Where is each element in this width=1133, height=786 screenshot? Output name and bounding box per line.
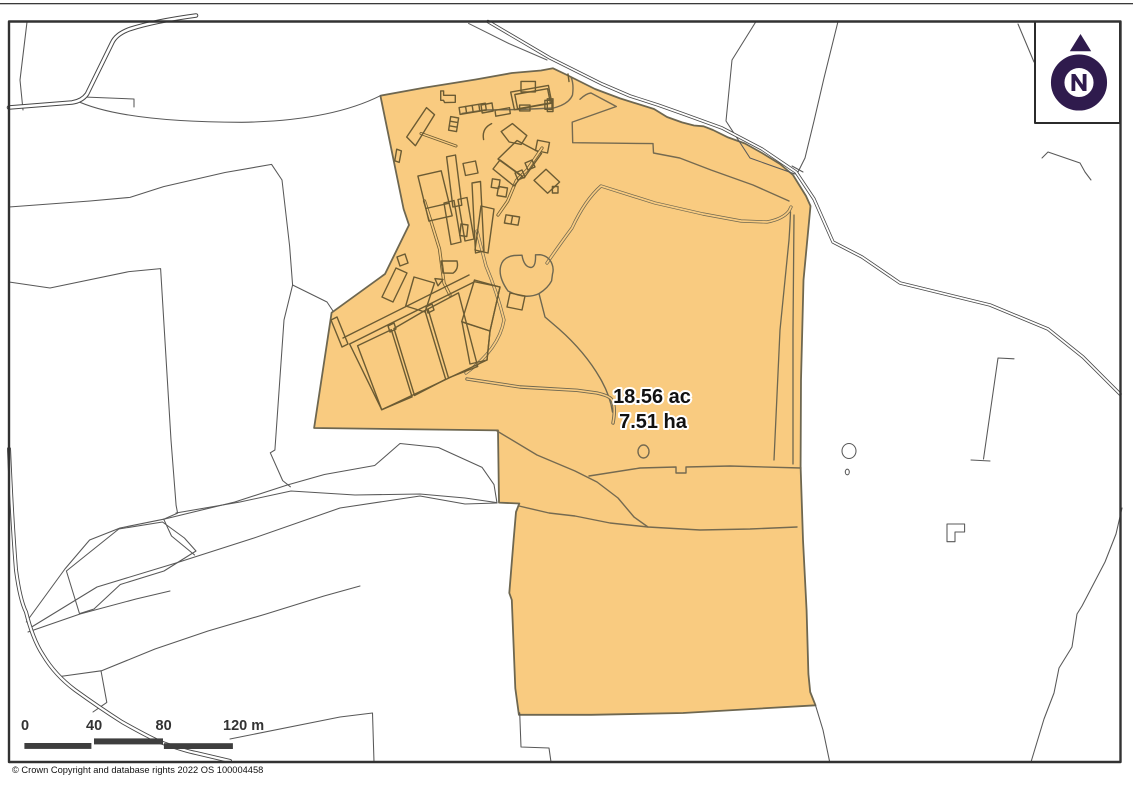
svg-text:7.51 ha: 7.51 ha xyxy=(619,411,688,433)
svg-text:0: 0 xyxy=(21,718,29,734)
svg-text:© Crown Copyright and database: © Crown Copyright and database rights 20… xyxy=(12,765,263,775)
svg-text:40: 40 xyxy=(86,718,102,734)
svg-text:80: 80 xyxy=(156,718,172,734)
svg-text:120 m: 120 m xyxy=(223,718,264,734)
svg-text:18.56 ac: 18.56 ac xyxy=(613,386,691,408)
